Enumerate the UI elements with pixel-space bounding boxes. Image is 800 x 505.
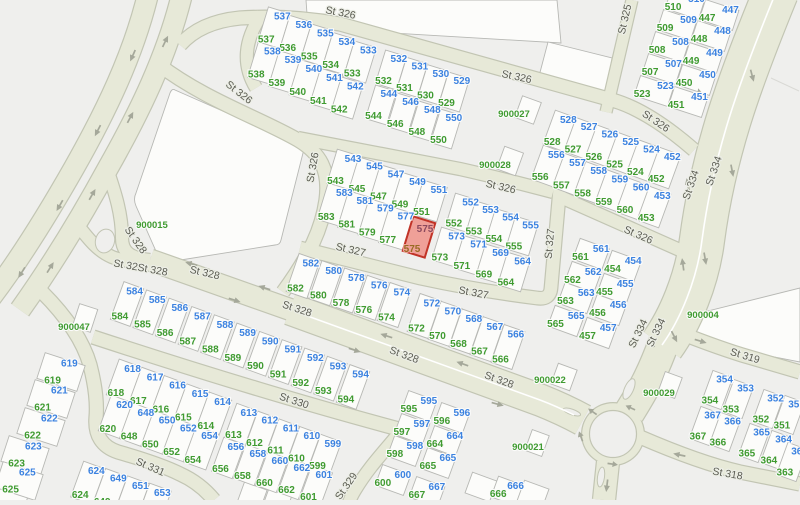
svg-text:612: 612 xyxy=(246,438,263,449)
svg-text:571: 571 xyxy=(453,261,470,272)
svg-text:656: 656 xyxy=(212,464,229,475)
svg-text:618: 618 xyxy=(107,388,124,399)
svg-text:589: 589 xyxy=(225,353,242,364)
svg-text:534: 534 xyxy=(322,60,339,71)
svg-text:594: 594 xyxy=(352,370,369,381)
svg-text:451: 451 xyxy=(668,100,685,111)
svg-text:616: 616 xyxy=(152,404,169,415)
svg-text:559: 559 xyxy=(612,174,629,185)
svg-text:667: 667 xyxy=(429,482,446,493)
svg-text:652: 652 xyxy=(163,447,180,458)
svg-text:588: 588 xyxy=(202,345,219,356)
svg-text:625: 625 xyxy=(19,468,36,479)
svg-text:900021: 900021 xyxy=(512,442,544,453)
svg-text:367: 367 xyxy=(690,432,707,443)
svg-text:565: 565 xyxy=(568,311,585,322)
svg-text:541: 541 xyxy=(326,73,343,84)
svg-text:586: 586 xyxy=(171,303,188,314)
svg-text:352: 352 xyxy=(767,393,784,404)
svg-text:571: 571 xyxy=(470,240,487,251)
svg-text:580: 580 xyxy=(310,291,327,302)
svg-text:508: 508 xyxy=(672,37,689,48)
svg-text:598: 598 xyxy=(386,449,403,460)
svg-text:366: 366 xyxy=(724,416,741,427)
svg-text:589: 589 xyxy=(239,328,256,339)
svg-text:662: 662 xyxy=(294,463,311,474)
svg-text:553: 553 xyxy=(482,205,499,216)
svg-text:364: 364 xyxy=(761,456,778,467)
svg-text:596: 596 xyxy=(454,408,471,419)
svg-text:590: 590 xyxy=(262,336,279,347)
svg-text:532: 532 xyxy=(391,54,408,65)
svg-text:558: 558 xyxy=(590,166,607,177)
svg-text:666: 666 xyxy=(507,481,524,492)
svg-text:652: 652 xyxy=(180,424,197,435)
svg-text:354: 354 xyxy=(716,374,733,385)
svg-text:535: 535 xyxy=(301,52,318,63)
svg-text:509: 509 xyxy=(657,23,674,34)
svg-text:533: 533 xyxy=(344,69,361,80)
svg-text:556: 556 xyxy=(532,172,549,183)
svg-text:591: 591 xyxy=(270,370,287,381)
svg-text:650: 650 xyxy=(159,416,176,427)
svg-text:614: 614 xyxy=(214,397,231,408)
svg-text:551: 551 xyxy=(413,207,430,218)
svg-text:664: 664 xyxy=(426,439,443,450)
svg-text:549: 549 xyxy=(392,200,409,211)
svg-text:532: 532 xyxy=(375,76,392,87)
svg-text:660: 660 xyxy=(272,456,289,467)
svg-text:562: 562 xyxy=(585,267,602,278)
svg-text:569: 569 xyxy=(475,269,492,280)
svg-text:529: 529 xyxy=(454,76,471,87)
svg-text:600: 600 xyxy=(374,478,391,489)
svg-text:593: 593 xyxy=(315,386,332,397)
svg-text:576: 576 xyxy=(371,280,388,291)
svg-text:617: 617 xyxy=(147,373,164,384)
svg-text:579: 579 xyxy=(377,204,394,215)
svg-text:568: 568 xyxy=(466,314,483,325)
svg-text:509: 509 xyxy=(680,15,697,26)
svg-text:351: 351 xyxy=(774,421,791,432)
svg-text:543: 543 xyxy=(327,176,344,187)
svg-text:456: 456 xyxy=(589,308,606,319)
svg-text:601: 601 xyxy=(316,470,333,481)
svg-text:533: 533 xyxy=(360,46,377,57)
svg-text:568: 568 xyxy=(450,339,467,350)
svg-text:457: 457 xyxy=(600,323,617,334)
svg-text:541: 541 xyxy=(310,96,327,107)
svg-text:662: 662 xyxy=(278,485,295,496)
svg-text:530: 530 xyxy=(433,69,450,80)
svg-text:562: 562 xyxy=(564,275,581,286)
svg-text:452: 452 xyxy=(648,174,665,185)
svg-text:560: 560 xyxy=(633,183,650,194)
svg-text:365: 365 xyxy=(753,427,770,438)
svg-text:600: 600 xyxy=(395,470,412,481)
svg-text:570: 570 xyxy=(429,331,446,342)
svg-text:352: 352 xyxy=(753,415,770,426)
svg-text:584: 584 xyxy=(112,311,129,322)
svg-text:622: 622 xyxy=(41,414,58,425)
svg-text:584: 584 xyxy=(126,287,143,298)
svg-text:507: 507 xyxy=(665,59,682,70)
svg-text:448: 448 xyxy=(714,26,731,37)
svg-text:665: 665 xyxy=(419,461,436,472)
svg-text:563: 563 xyxy=(557,296,574,307)
svg-text:621: 621 xyxy=(34,403,51,414)
svg-text:561: 561 xyxy=(572,252,589,263)
svg-text:353: 353 xyxy=(737,383,754,394)
svg-text:363: 363 xyxy=(791,446,800,457)
svg-text:579: 579 xyxy=(359,227,376,238)
svg-text:656: 656 xyxy=(228,442,245,453)
svg-text:564: 564 xyxy=(497,278,514,289)
svg-text:508: 508 xyxy=(649,45,666,56)
svg-text:550: 550 xyxy=(446,113,463,124)
svg-text:525: 525 xyxy=(622,137,639,148)
svg-text:597: 597 xyxy=(414,419,431,430)
svg-text:570: 570 xyxy=(445,306,462,317)
svg-text:654: 654 xyxy=(201,431,218,442)
svg-text:649: 649 xyxy=(110,474,127,485)
svg-text:658: 658 xyxy=(234,471,251,482)
svg-text:449: 449 xyxy=(683,56,700,67)
svg-text:526: 526 xyxy=(602,130,619,141)
svg-text:546: 546 xyxy=(402,97,419,108)
svg-text:614: 614 xyxy=(197,421,214,432)
svg-text:593: 593 xyxy=(330,361,347,372)
svg-text:530: 530 xyxy=(417,91,434,102)
svg-text:564: 564 xyxy=(514,256,531,267)
svg-text:536: 536 xyxy=(279,43,296,54)
svg-text:447: 447 xyxy=(699,13,716,24)
svg-text:574: 574 xyxy=(394,288,411,299)
svg-text:455: 455 xyxy=(596,287,613,298)
svg-text:572: 572 xyxy=(424,299,441,310)
svg-text:538: 538 xyxy=(248,70,265,81)
svg-text:575: 575 xyxy=(417,224,434,235)
svg-text:552: 552 xyxy=(445,219,462,230)
svg-text:625: 625 xyxy=(2,485,19,496)
svg-text:447: 447 xyxy=(722,5,739,16)
svg-text:528: 528 xyxy=(544,137,561,148)
svg-text:510: 510 xyxy=(665,2,682,13)
svg-text:900015: 900015 xyxy=(136,220,168,231)
svg-text:587: 587 xyxy=(179,336,196,347)
svg-text:611: 611 xyxy=(283,423,300,434)
svg-text:900028: 900028 xyxy=(479,160,511,171)
svg-text:618: 618 xyxy=(124,364,141,375)
svg-text:578: 578 xyxy=(333,298,350,309)
svg-text:537: 537 xyxy=(258,35,275,46)
svg-text:615: 615 xyxy=(175,413,192,424)
svg-text:557: 557 xyxy=(553,180,570,191)
svg-text:545: 545 xyxy=(366,162,383,173)
svg-text:454: 454 xyxy=(604,264,621,275)
svg-text:526: 526 xyxy=(585,152,602,163)
svg-text:591: 591 xyxy=(284,345,301,356)
svg-text:648: 648 xyxy=(138,408,155,419)
svg-text:542: 542 xyxy=(331,105,348,116)
svg-text:595: 595 xyxy=(400,404,417,415)
svg-text:624: 624 xyxy=(72,490,89,500)
svg-text:525: 525 xyxy=(606,159,623,170)
svg-text:620: 620 xyxy=(99,424,116,435)
svg-text:569: 569 xyxy=(492,248,509,259)
svg-text:599: 599 xyxy=(325,439,342,450)
svg-text:566: 566 xyxy=(508,330,525,341)
svg-text:539: 539 xyxy=(269,78,286,89)
svg-text:566: 566 xyxy=(492,354,509,365)
svg-text:544: 544 xyxy=(381,89,398,100)
svg-text:527: 527 xyxy=(581,122,598,133)
svg-text:366: 366 xyxy=(710,438,727,449)
svg-text:610: 610 xyxy=(304,431,321,442)
svg-text:524: 524 xyxy=(643,144,660,155)
svg-text:623: 623 xyxy=(25,442,42,453)
svg-text:573: 573 xyxy=(448,231,465,242)
svg-text:585: 585 xyxy=(149,295,166,306)
svg-text:592: 592 xyxy=(307,353,324,364)
svg-text:613: 613 xyxy=(225,430,242,441)
svg-text:576: 576 xyxy=(355,305,372,316)
svg-text:454: 454 xyxy=(625,256,642,267)
svg-text:651: 651 xyxy=(132,481,149,492)
svg-text:540: 540 xyxy=(305,64,322,75)
svg-text:535: 535 xyxy=(317,29,334,40)
svg-text:563: 563 xyxy=(578,288,595,299)
svg-text:595: 595 xyxy=(421,396,438,407)
svg-text:559: 559 xyxy=(595,197,612,208)
svg-text:590: 590 xyxy=(247,361,264,372)
svg-text:900029: 900029 xyxy=(643,388,675,399)
svg-text:524: 524 xyxy=(627,167,644,178)
svg-text:624: 624 xyxy=(88,466,105,477)
svg-text:586: 586 xyxy=(157,328,174,339)
svg-text:552: 552 xyxy=(462,197,479,208)
svg-text:567: 567 xyxy=(471,347,488,358)
svg-text:581: 581 xyxy=(338,220,355,231)
svg-text:529: 529 xyxy=(438,98,455,109)
svg-text:531: 531 xyxy=(412,61,429,72)
svg-text:620: 620 xyxy=(116,400,133,411)
svg-text:587: 587 xyxy=(194,312,211,323)
svg-text:664: 664 xyxy=(447,431,464,442)
svg-text:574: 574 xyxy=(378,312,395,323)
svg-text:558: 558 xyxy=(574,189,591,200)
svg-text:578: 578 xyxy=(348,273,365,284)
svg-text:354: 354 xyxy=(702,396,719,407)
svg-text:622: 622 xyxy=(24,431,41,442)
svg-text:594: 594 xyxy=(338,394,355,405)
svg-text:456: 456 xyxy=(610,300,627,311)
svg-text:546: 546 xyxy=(387,119,404,130)
svg-text:538: 538 xyxy=(264,47,281,58)
svg-text:353: 353 xyxy=(723,405,740,416)
svg-text:580: 580 xyxy=(325,266,342,277)
svg-text:900022: 900022 xyxy=(534,375,566,386)
svg-text:648: 648 xyxy=(121,432,138,443)
svg-text:582: 582 xyxy=(303,259,320,270)
svg-text:612: 612 xyxy=(262,416,279,427)
svg-text:616: 616 xyxy=(169,381,186,392)
svg-text:365: 365 xyxy=(739,449,756,460)
svg-text:581: 581 xyxy=(357,196,374,207)
svg-text:592: 592 xyxy=(292,378,309,389)
svg-text:523: 523 xyxy=(634,89,651,100)
svg-text:551: 551 xyxy=(431,185,448,196)
svg-text:527: 527 xyxy=(565,145,582,156)
svg-text:567: 567 xyxy=(487,322,504,333)
svg-text:665: 665 xyxy=(440,453,457,464)
svg-text:554: 554 xyxy=(502,213,519,224)
svg-text:557: 557 xyxy=(569,158,586,169)
svg-text:507: 507 xyxy=(642,67,659,78)
svg-text:582: 582 xyxy=(287,283,304,294)
svg-text:542: 542 xyxy=(347,82,364,93)
svg-text:531: 531 xyxy=(396,83,413,94)
svg-text:351: 351 xyxy=(788,399,800,410)
svg-text:650: 650 xyxy=(142,439,159,450)
svg-text:553: 553 xyxy=(465,226,482,237)
svg-text:453: 453 xyxy=(654,191,671,202)
svg-text:455: 455 xyxy=(617,279,634,290)
svg-text:364: 364 xyxy=(775,434,792,445)
svg-text:510: 510 xyxy=(688,0,705,5)
svg-text:653: 653 xyxy=(154,488,171,499)
svg-text:453: 453 xyxy=(638,213,655,224)
svg-text:597: 597 xyxy=(393,427,410,438)
svg-text:537: 537 xyxy=(274,12,291,23)
svg-text:615: 615 xyxy=(192,389,209,400)
svg-text:452: 452 xyxy=(664,152,681,163)
svg-text:900047: 900047 xyxy=(58,322,90,333)
svg-text:613: 613 xyxy=(241,408,258,419)
svg-text:548: 548 xyxy=(409,127,426,138)
svg-text:667: 667 xyxy=(408,490,425,500)
svg-text:573: 573 xyxy=(431,253,448,264)
svg-text:583: 583 xyxy=(336,188,353,199)
svg-text:536: 536 xyxy=(295,20,312,31)
svg-text:534: 534 xyxy=(338,37,355,48)
svg-text:585: 585 xyxy=(134,320,151,331)
svg-text:560: 560 xyxy=(617,205,634,216)
svg-text:565: 565 xyxy=(547,319,564,330)
svg-text:598: 598 xyxy=(407,441,424,452)
svg-text:449: 449 xyxy=(706,48,723,59)
svg-text:367: 367 xyxy=(704,410,721,421)
svg-text:621: 621 xyxy=(51,386,68,397)
svg-text:544: 544 xyxy=(365,111,382,122)
svg-text:554: 554 xyxy=(485,234,502,245)
svg-text:619: 619 xyxy=(61,359,78,370)
svg-text:583: 583 xyxy=(318,212,335,223)
svg-text:660: 660 xyxy=(256,478,273,489)
svg-text:457: 457 xyxy=(579,331,596,342)
svg-text:572: 572 xyxy=(408,323,425,334)
svg-text:450: 450 xyxy=(676,78,693,89)
svg-text:577: 577 xyxy=(379,235,396,246)
svg-text:548: 548 xyxy=(424,105,441,116)
svg-text:448: 448 xyxy=(691,34,708,45)
svg-text:556: 556 xyxy=(548,150,565,161)
svg-text:577: 577 xyxy=(398,211,415,222)
svg-text:900027: 900027 xyxy=(498,109,530,120)
svg-text:601: 601 xyxy=(300,492,317,500)
svg-text:654: 654 xyxy=(184,455,201,466)
svg-text:450: 450 xyxy=(699,70,716,81)
svg-text:596: 596 xyxy=(433,416,450,427)
svg-text:543: 543 xyxy=(345,154,362,165)
svg-text:550: 550 xyxy=(430,135,447,146)
svg-text:528: 528 xyxy=(560,115,577,126)
svg-text:575: 575 xyxy=(404,244,421,255)
svg-text:658: 658 xyxy=(250,449,267,460)
svg-text:547: 547 xyxy=(388,169,405,180)
svg-text:561: 561 xyxy=(593,244,610,255)
svg-text:540: 540 xyxy=(289,87,306,98)
svg-text:451: 451 xyxy=(691,92,708,103)
svg-text:666: 666 xyxy=(490,489,507,500)
svg-text:523: 523 xyxy=(657,81,674,92)
svg-text:363: 363 xyxy=(777,468,794,479)
svg-text:588: 588 xyxy=(217,320,234,331)
svg-text:539: 539 xyxy=(285,55,302,66)
svg-text:549: 549 xyxy=(409,177,426,188)
svg-text:555: 555 xyxy=(522,220,539,231)
svg-text:900004: 900004 xyxy=(687,310,719,321)
